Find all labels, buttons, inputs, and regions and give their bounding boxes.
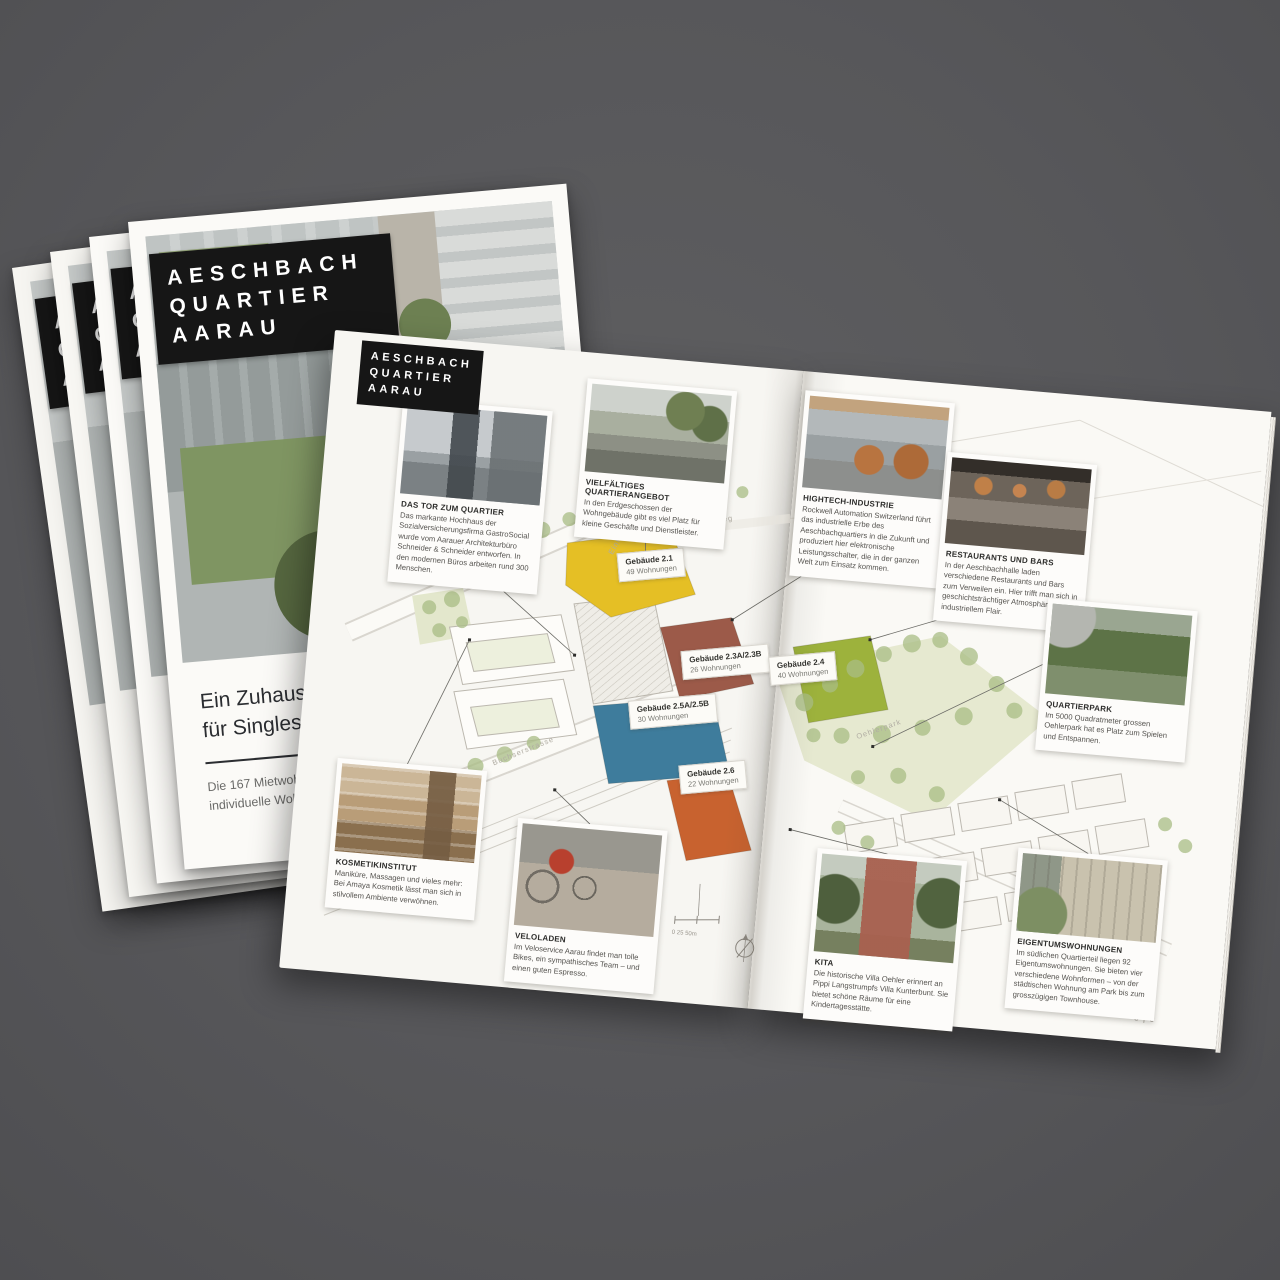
scale-bar xyxy=(675,882,722,928)
card-photo-industrie xyxy=(802,396,949,500)
card-photo-wohnungen xyxy=(1016,853,1162,943)
scale-label: 0 25 50m xyxy=(671,930,696,938)
north-arrow-icon xyxy=(735,933,755,962)
building-label-2-1: Gebäude 2.1 49 Wohnungen xyxy=(617,548,686,583)
card-photo-restaurant xyxy=(945,457,1092,555)
card-photo-strasse xyxy=(585,384,732,484)
building-label-2-4: Gebäude 2.4 40 Wohnungen xyxy=(768,651,837,686)
card-photo-park xyxy=(1045,604,1192,706)
info-card-kita: KITA Die historische Villa Oehler erinne… xyxy=(803,848,967,1031)
card-body: Rockwell Automation Switzerland führt da… xyxy=(797,504,938,578)
info-card-das-tor: DAS TOR ZUM QUARTIER Das markante Hochha… xyxy=(387,398,552,594)
open-brochure-spread: Hubelmattstrasse Buchserstrasse Einfahrt… xyxy=(279,330,1271,1049)
card-photo-hochhaus xyxy=(400,404,547,506)
info-card-hightech: HIGHTECH-INDUSTRIE Rockwell Automation S… xyxy=(789,390,955,588)
photo-scene: AESCHBACH QUARTIER AARAU AESCHBACH QUART… xyxy=(0,0,1280,1280)
info-card-quartierangebot: VIELFÄLTIGES QUARTIERANGEBOT In den Erdg… xyxy=(574,378,737,550)
card-photo-kosmetik xyxy=(335,763,482,863)
info-card-eigentumswohnungen: EIGENTUMSWOHNUNGEN Im südlichen Quartier… xyxy=(1004,848,1167,1022)
info-card-quartierpark: QUARTIERPARK Im 5000 Quadratmeter grosse… xyxy=(1035,598,1198,763)
spread-logo: AESCHBACH QUARTIER AARAU xyxy=(357,340,484,414)
card-body: Das markante Hochhaus der Sozialversiche… xyxy=(395,510,536,584)
info-card-veloladen: VELOLADEN Im Veloservice Aarau findet ma… xyxy=(504,818,668,995)
info-card-kosmetik: KOSMETIKINSTITUT Maniküre, Massagen und … xyxy=(325,758,488,921)
card-photo-villa xyxy=(814,853,962,963)
building-label-2-6: Gebäude 2.6 22 Wohnungen xyxy=(678,760,747,795)
card-photo-velos xyxy=(514,823,662,937)
card-body: Im südlichen Quartierteil liegen 92 Eige… xyxy=(1012,948,1152,1012)
